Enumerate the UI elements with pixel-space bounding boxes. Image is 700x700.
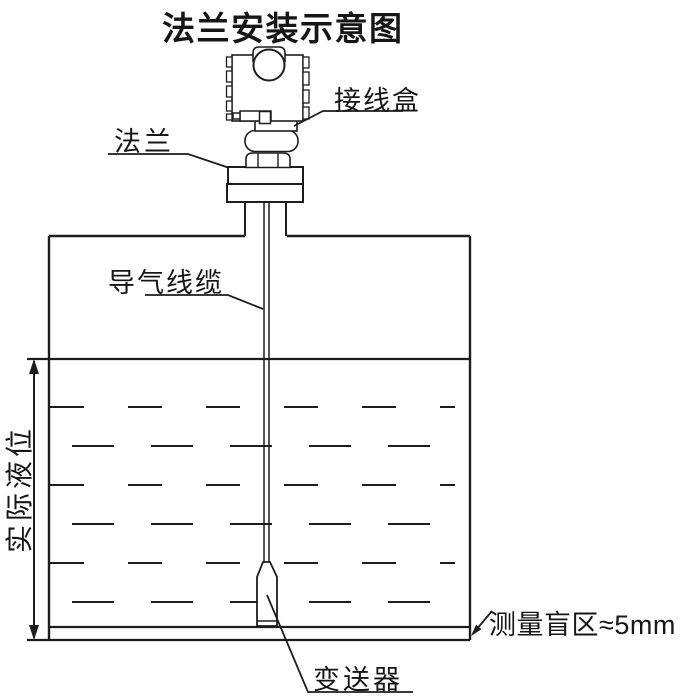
housing-ribs-left — [227, 57, 233, 120]
conduit-plug — [260, 112, 271, 124]
transmitter-head — [227, 47, 310, 168]
probe-body — [257, 562, 277, 626]
nozzle-standpipe — [245, 202, 286, 236]
transmitter-label: 变送器 — [313, 658, 403, 697]
air-cable-label: 导气线缆 — [108, 261, 224, 300]
standpipe-walls — [245, 202, 286, 236]
liquid-dash-rows — [50, 407, 460, 602]
tank-outline — [27, 236, 470, 640]
neck-coupling — [245, 131, 298, 152]
arrowhead-up-icon — [29, 359, 39, 374]
top-cap — [254, 50, 285, 81]
conduit-tab — [233, 113, 240, 119]
housing-ribs-right — [303, 57, 309, 119]
diagram-title: 法兰安装示意图 — [162, 2, 404, 50]
diagram-canvas: 法兰安装示意图 法兰 接线盒 导气线缆 实际液位 测量盲区≈5mm 变送器 — [0, 0, 700, 700]
flange-plate — [228, 167, 303, 184]
air-guide-cable — [264, 185, 269, 564]
cable-lines — [264, 185, 269, 564]
flange-collar — [227, 184, 303, 202]
blind-zone-label: 测量盲区≈5mm — [489, 603, 676, 642]
probe-outline — [257, 562, 277, 626]
hex-nut — [246, 153, 290, 168]
flange-assembly — [227, 167, 303, 202]
junction-box-label: 接线盒 — [334, 79, 421, 118]
actual-level-label: 实际液位 — [4, 420, 36, 558]
flange-label: 法兰 — [114, 120, 174, 159]
arrowhead-down-icon — [29, 625, 39, 640]
